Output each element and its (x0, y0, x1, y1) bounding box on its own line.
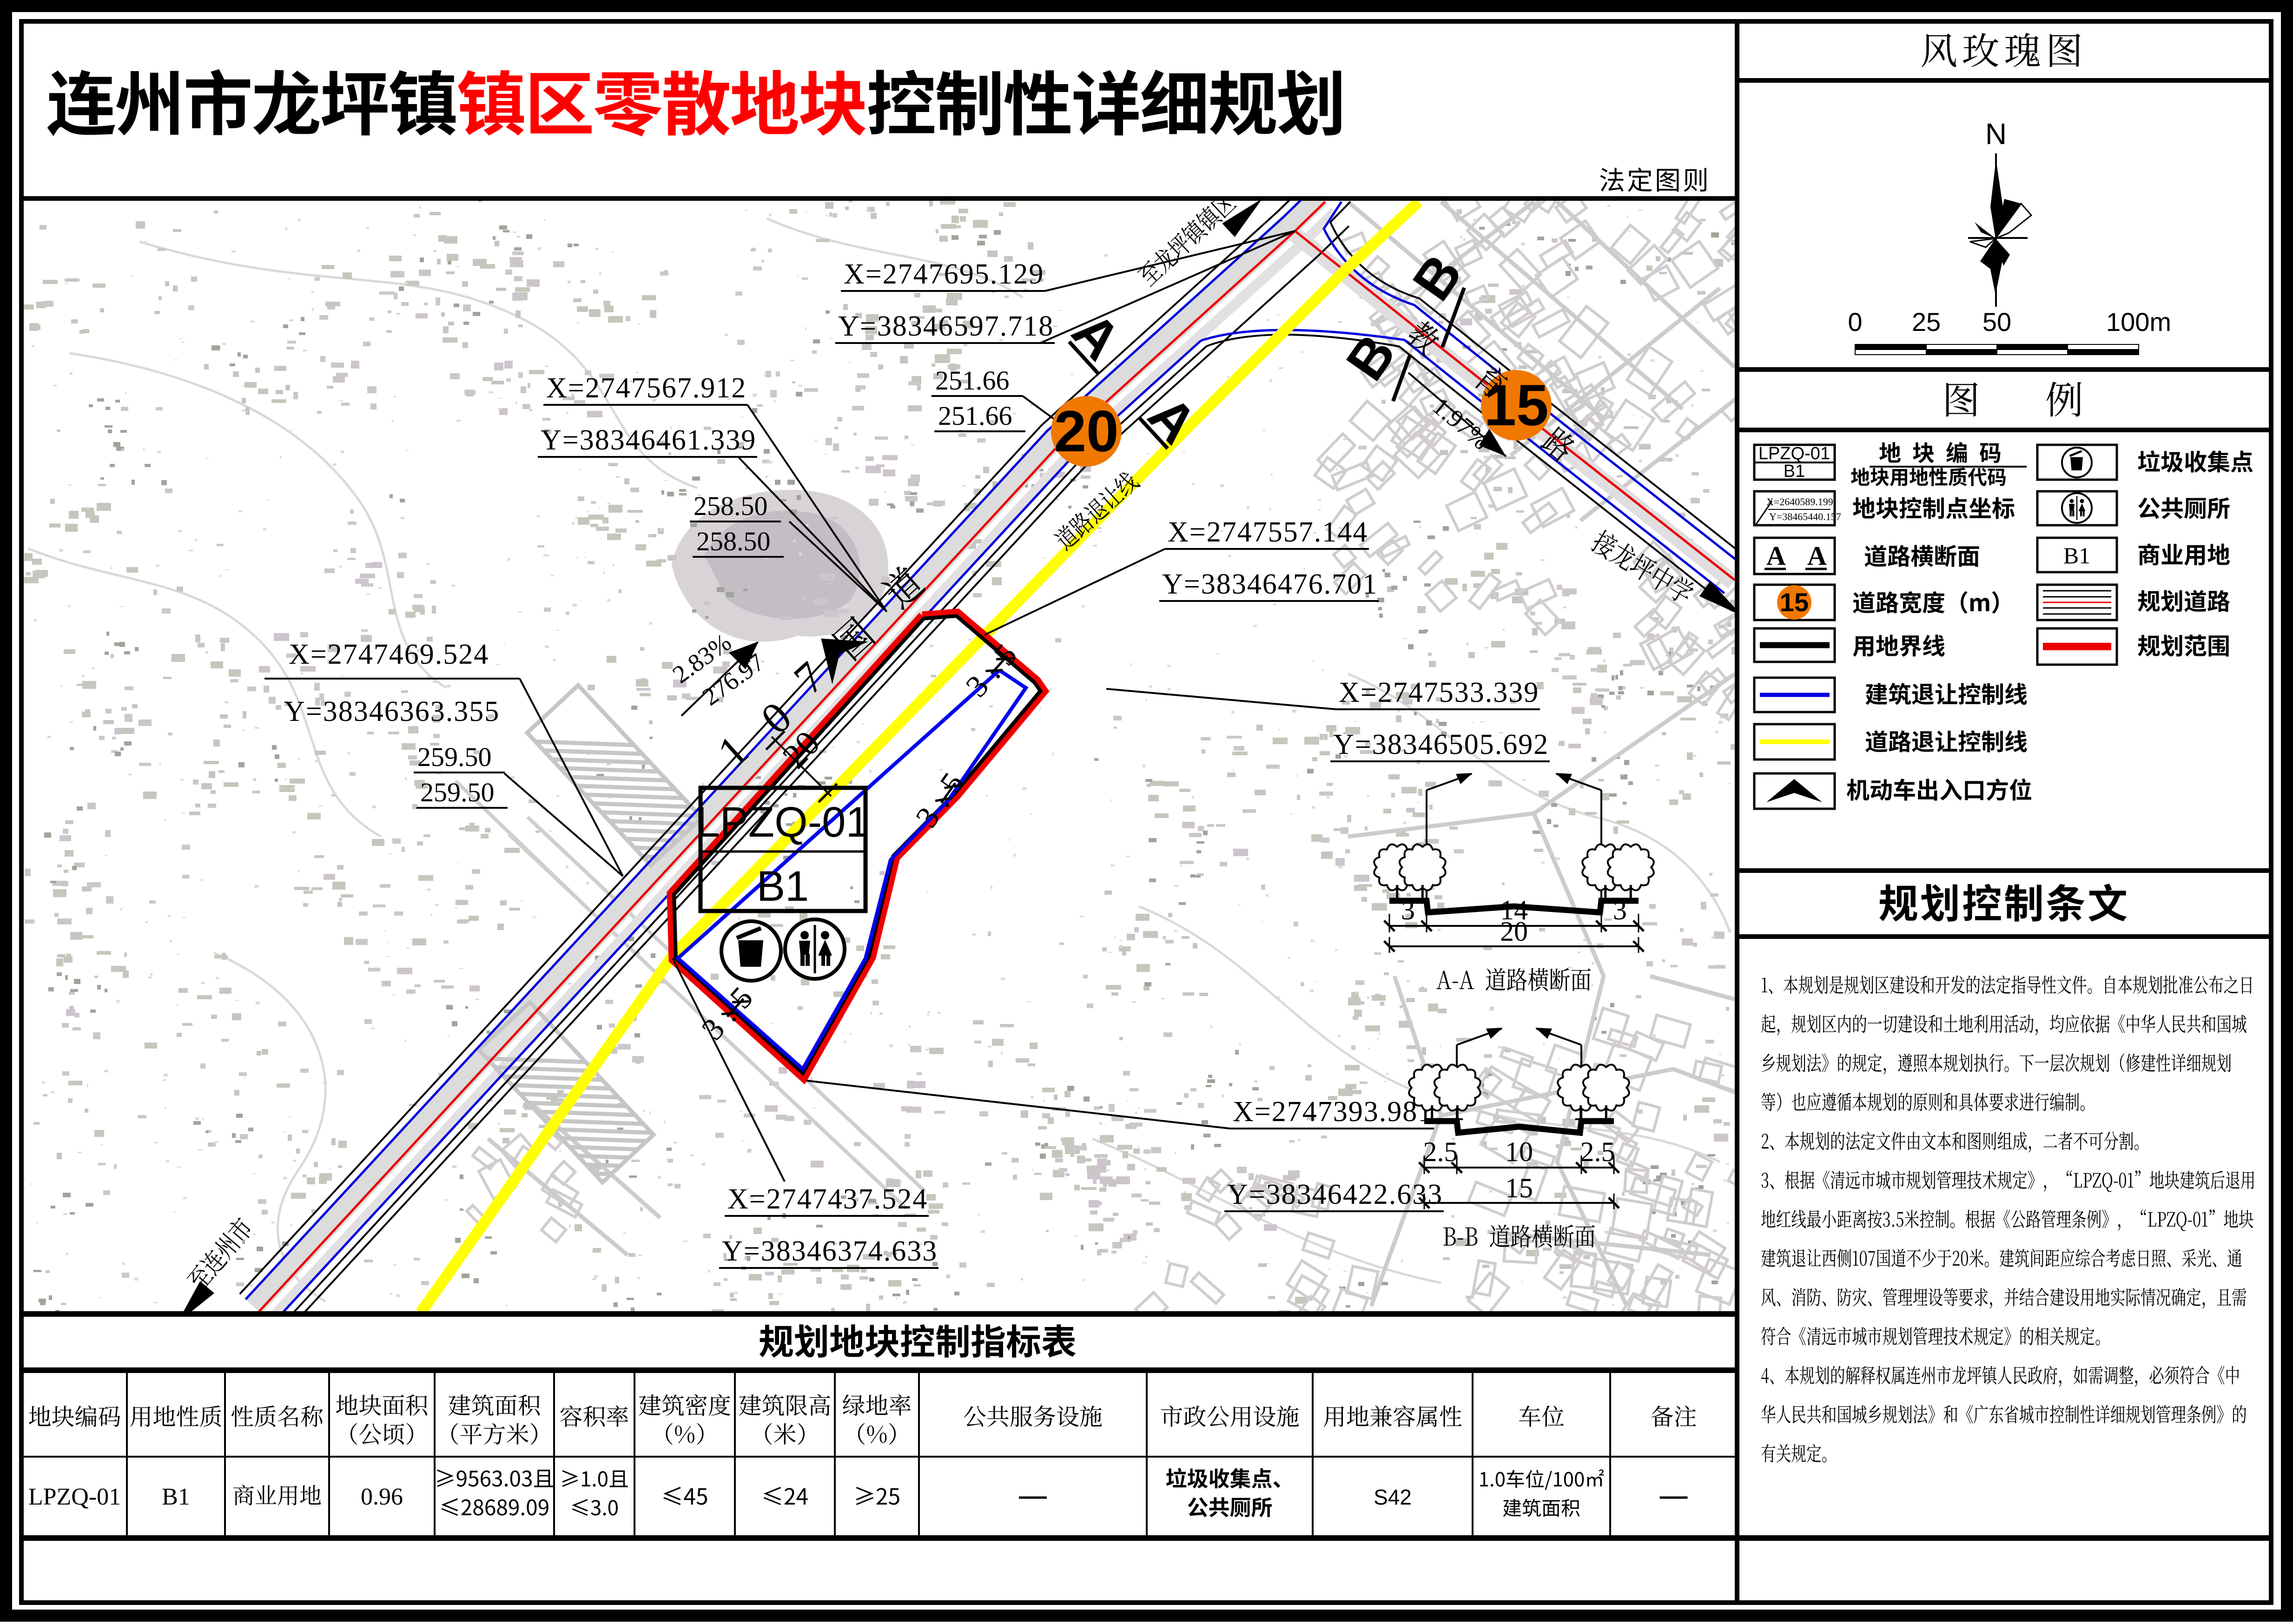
svg-text:100m: 100m (2106, 307, 2171, 337)
svg-text:Y=38346422.633: Y=38346422.633 (1227, 1179, 1443, 1210)
svg-text:Y=38346505.692: Y=38346505.692 (1333, 729, 1549, 760)
svg-text:X=2747567.912: X=2747567.912 (546, 372, 747, 404)
svg-text:X=2747695.129: X=2747695.129 (844, 258, 1044, 290)
svg-text:LPZQ-01: LPZQ-01 (1758, 444, 1830, 463)
svg-text:25: 25 (1912, 307, 1941, 337)
svg-text:X=2747393.981: X=2747393.981 (1233, 1096, 1433, 1128)
svg-text:B1: B1 (162, 1484, 190, 1510)
svg-text:Y=38465440.157: Y=38465440.157 (1769, 511, 1841, 522)
svg-text:10: 10 (1505, 1136, 1533, 1167)
svg-text:N: N (1985, 117, 2007, 151)
svg-text:Y=38346374.633: Y=38346374.633 (722, 1235, 938, 1267)
svg-text:X=2747437.524: X=2747437.524 (727, 1183, 928, 1215)
svg-text:LPZQ-01: LPZQ-01 (696, 799, 869, 846)
svg-text:15: 15 (1505, 1173, 1533, 1203)
svg-text:50: 50 (1982, 307, 2011, 337)
svg-text:20: 20 (1054, 399, 1118, 464)
svg-text:Y=38346461.339: Y=38346461.339 (541, 424, 756, 456)
svg-text:258.50: 258.50 (694, 491, 768, 521)
svg-text:2.5: 2.5 (1580, 1136, 1615, 1167)
svg-text:A: A (1807, 541, 1827, 571)
svg-text:15: 15 (1780, 588, 1809, 617)
svg-text:B1: B1 (2063, 542, 2090, 568)
svg-text:X=2747557.144: X=2747557.144 (1168, 516, 1368, 548)
svg-text:X=2747469.524: X=2747469.524 (289, 639, 489, 670)
svg-text:0.96: 0.96 (361, 1484, 403, 1510)
svg-text:Y=38346363.355: Y=38346363.355 (284, 696, 500, 727)
svg-text:2.5: 2.5 (1423, 1136, 1458, 1167)
svg-text:3: 3 (1613, 895, 1627, 925)
svg-text:259.50: 259.50 (417, 742, 492, 772)
svg-text:B1: B1 (1784, 462, 1805, 481)
svg-text:0: 0 (1848, 307, 1862, 337)
svg-text:3: 3 (1401, 895, 1415, 925)
svg-text:15: 15 (1484, 373, 1548, 438)
svg-text:S42: S42 (1374, 1485, 1412, 1509)
svg-text:259.50: 259.50 (420, 777, 495, 807)
svg-text:X=2747533.339: X=2747533.339 (1339, 677, 1539, 708)
svg-text:LPZQ-01: LPZQ-01 (28, 1484, 121, 1510)
svg-text:X=2640589.199: X=2640589.199 (1766, 496, 1833, 508)
svg-text:251.66: 251.66 (935, 365, 1010, 396)
svg-text:Y=38346597.718: Y=38346597.718 (838, 310, 1054, 342)
svg-text:Y=38346476.701: Y=38346476.701 (1162, 568, 1378, 600)
svg-text:B1: B1 (757, 863, 809, 910)
svg-text:258.50: 258.50 (696, 526, 771, 556)
svg-text:20: 20 (1500, 916, 1528, 947)
svg-text:A: A (1766, 541, 1786, 571)
svg-text:251.66: 251.66 (938, 401, 1012, 431)
